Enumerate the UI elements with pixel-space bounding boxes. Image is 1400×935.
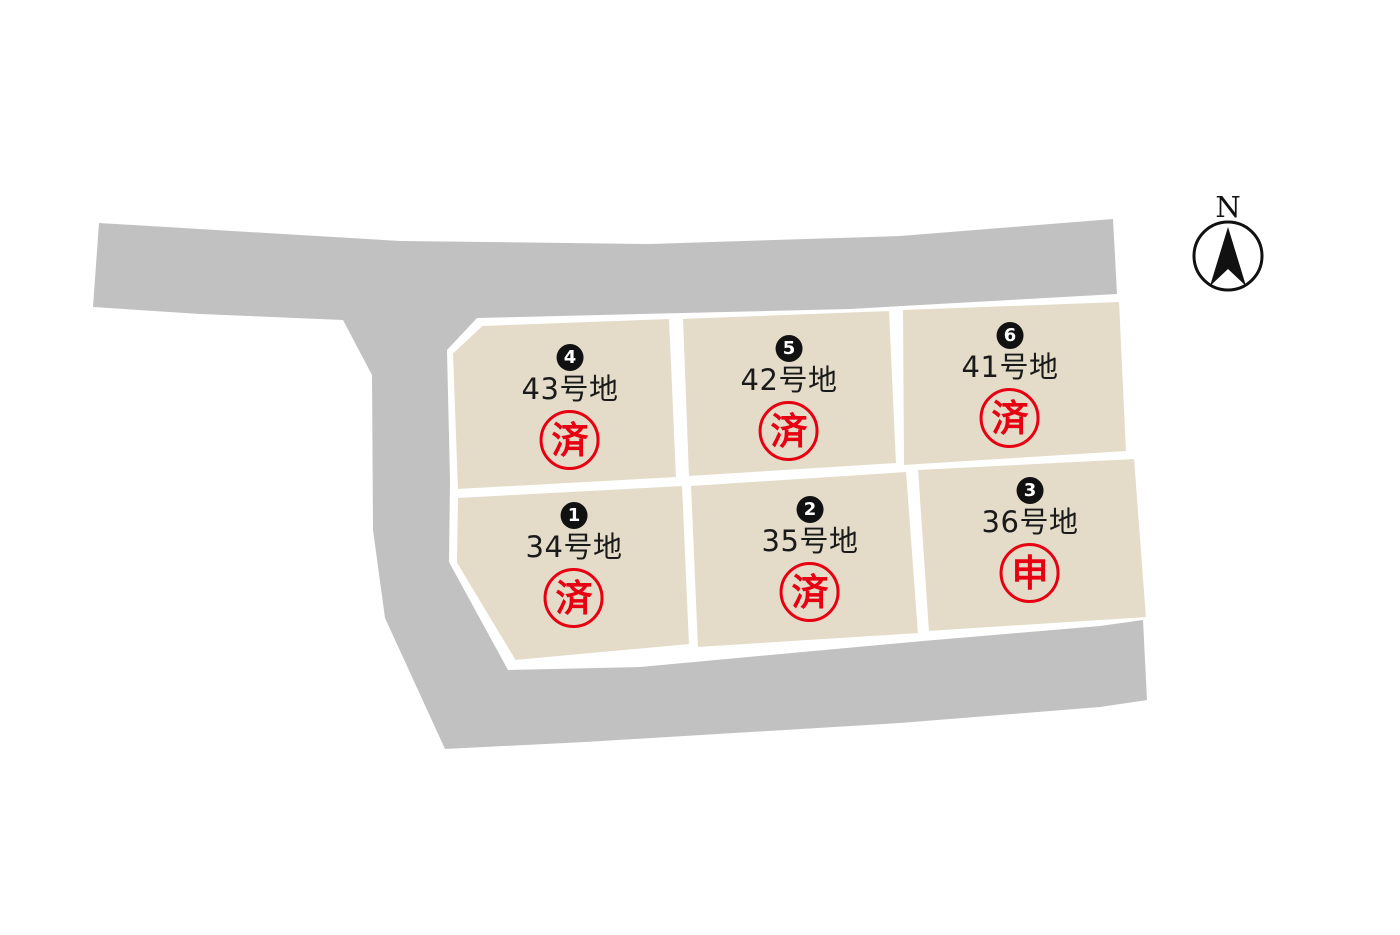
north-arrow-icon bbox=[1210, 227, 1246, 286]
lot-shape-41 bbox=[902, 301, 1127, 466]
compass-north-label: N bbox=[1215, 193, 1240, 222]
lot-map: N 4 43号地 済 5 42号地 済 6 41号地 済 1 34号地 済 2 … bbox=[0, 0, 1400, 935]
lot-shape-43 bbox=[452, 318, 677, 490]
lot-shape-35 bbox=[690, 471, 919, 648]
compass bbox=[1194, 222, 1262, 290]
lot-map-canvas bbox=[0, 0, 1400, 935]
lot-shape-36 bbox=[917, 458, 1147, 632]
lot-shape-42 bbox=[682, 310, 897, 477]
lot-shape-34 bbox=[456, 485, 690, 661]
